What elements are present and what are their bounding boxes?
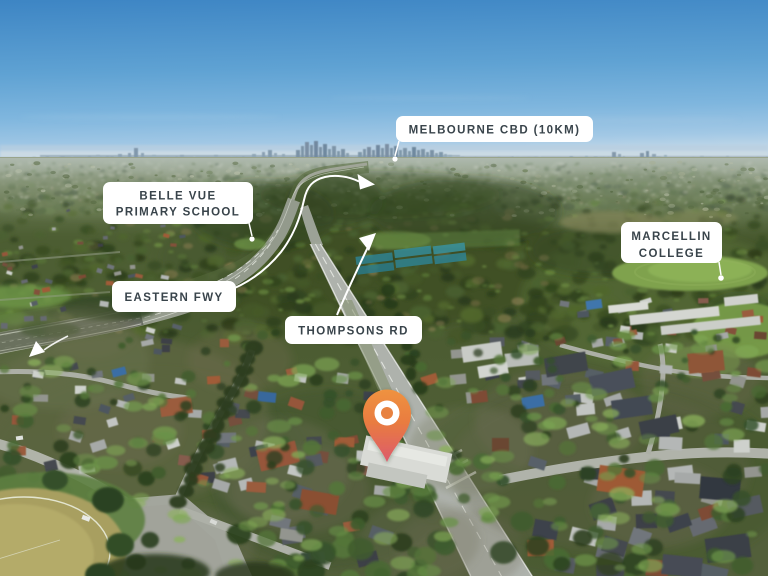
svg-text:MARCELLIN: MARCELLIN: [631, 231, 711, 243]
svg-text:MELBOURNE CBD (10KM): MELBOURNE CBD (10KM): [409, 125, 581, 137]
svg-text:BELLE VUE: BELLE VUE: [139, 191, 216, 203]
svg-text:THOMPSONS RD: THOMPSONS RD: [298, 326, 409, 338]
svg-text:COLLEGE: COLLEGE: [639, 248, 704, 260]
svg-text:EASTERN FWY: EASTERN FWY: [124, 292, 223, 304]
svg-text:PRIMARY SCHOOL: PRIMARY SCHOOL: [116, 207, 240, 219]
